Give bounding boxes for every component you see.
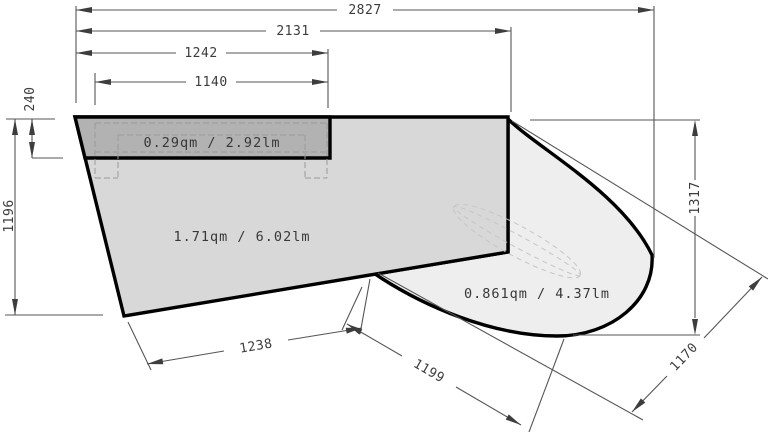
dim-diag-1170: 1170 [667, 340, 701, 374]
dim-diag-1199: 1199 [411, 357, 447, 387]
area-label-curve: 0.861qm / 4.37lm [464, 286, 610, 302]
dim-right-height: 1317 [688, 181, 703, 214]
dim-width-2131: 2131 [276, 24, 309, 39]
dim-width-total: 2827 [348, 3, 381, 18]
technical-drawing-canvas: 2827 2131 1242 1140 240 1196 1317 1170 1… [0, 0, 768, 432]
dim-bottom-1238: 1238 [238, 336, 273, 356]
dim-width-1242: 1242 [184, 46, 217, 61]
area-label-strip: 0.29qm / 2.92lm [144, 135, 281, 151]
dim-width-1140: 1140 [194, 75, 227, 90]
plan-drawing: 2827 2131 1242 1140 240 1196 1317 1170 1… [0, 0, 768, 432]
area-label-main: 1.71qm / 6.02lm [174, 229, 311, 245]
dim-strip-height: 240 [23, 87, 38, 112]
dim-left-height: 1196 [2, 199, 17, 232]
